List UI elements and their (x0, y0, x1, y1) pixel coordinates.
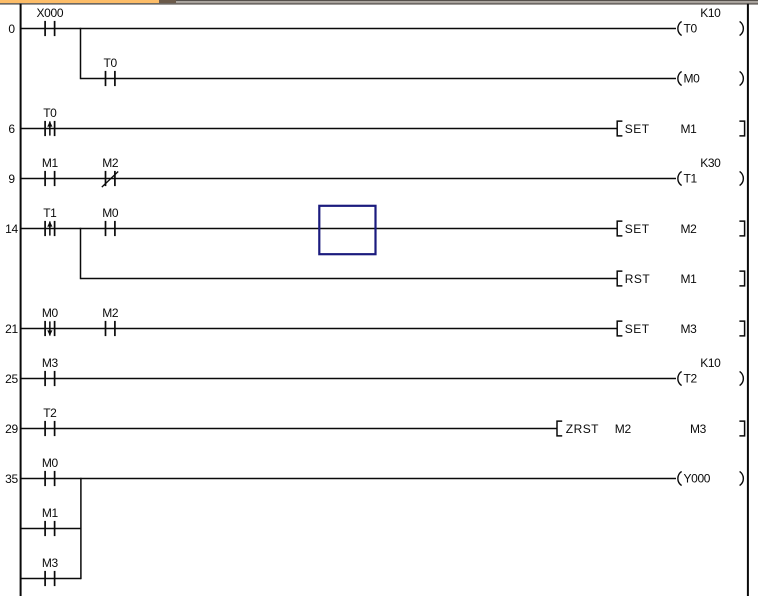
svg-text:M3: M3 (42, 556, 59, 570)
svg-text:25: 25 (5, 372, 18, 386)
svg-text:M0: M0 (42, 306, 59, 320)
svg-text:M2: M2 (681, 222, 698, 236)
svg-text:M2: M2 (102, 306, 119, 320)
svg-text:SET: SET (625, 122, 650, 136)
svg-text:T2: T2 (43, 406, 57, 420)
svg-text:T0: T0 (104, 56, 118, 70)
svg-text:6: 6 (8, 122, 15, 136)
svg-text:T1: T1 (43, 206, 57, 220)
svg-text:M0: M0 (102, 206, 119, 220)
svg-text:ZRST: ZRST (566, 422, 599, 436)
svg-text:M1: M1 (42, 506, 59, 520)
svg-text:14: 14 (5, 222, 18, 236)
svg-text:SET: SET (625, 322, 650, 336)
svg-text:T0: T0 (684, 21, 698, 35)
svg-text:K10: K10 (700, 356, 721, 370)
svg-text:35: 35 (5, 472, 18, 486)
svg-text:M0: M0 (42, 456, 59, 470)
svg-text:T0: T0 (43, 106, 57, 120)
svg-text:29: 29 (5, 422, 18, 436)
svg-text:X000: X000 (37, 6, 64, 20)
svg-text:M1: M1 (681, 122, 698, 136)
svg-text:Y000: Y000 (684, 471, 711, 485)
svg-text:9: 9 (8, 172, 15, 186)
svg-text:RST: RST (625, 272, 651, 286)
svg-text:21: 21 (5, 322, 18, 336)
svg-text:M3: M3 (690, 422, 707, 436)
svg-text:M2: M2 (102, 156, 119, 170)
svg-text:T2: T2 (684, 371, 698, 385)
svg-text:SET: SET (625, 222, 650, 236)
svg-text:K30: K30 (700, 156, 721, 170)
svg-text:M1: M1 (42, 156, 59, 170)
svg-text:M0: M0 (684, 71, 701, 85)
svg-text:M2: M2 (615, 422, 632, 436)
svg-text:M1: M1 (681, 272, 698, 286)
svg-text:K10: K10 (700, 6, 721, 20)
svg-text:0: 0 (8, 22, 15, 36)
svg-text:M3: M3 (681, 322, 698, 336)
svg-text:M3: M3 (42, 356, 59, 370)
svg-text:T1: T1 (684, 171, 698, 185)
